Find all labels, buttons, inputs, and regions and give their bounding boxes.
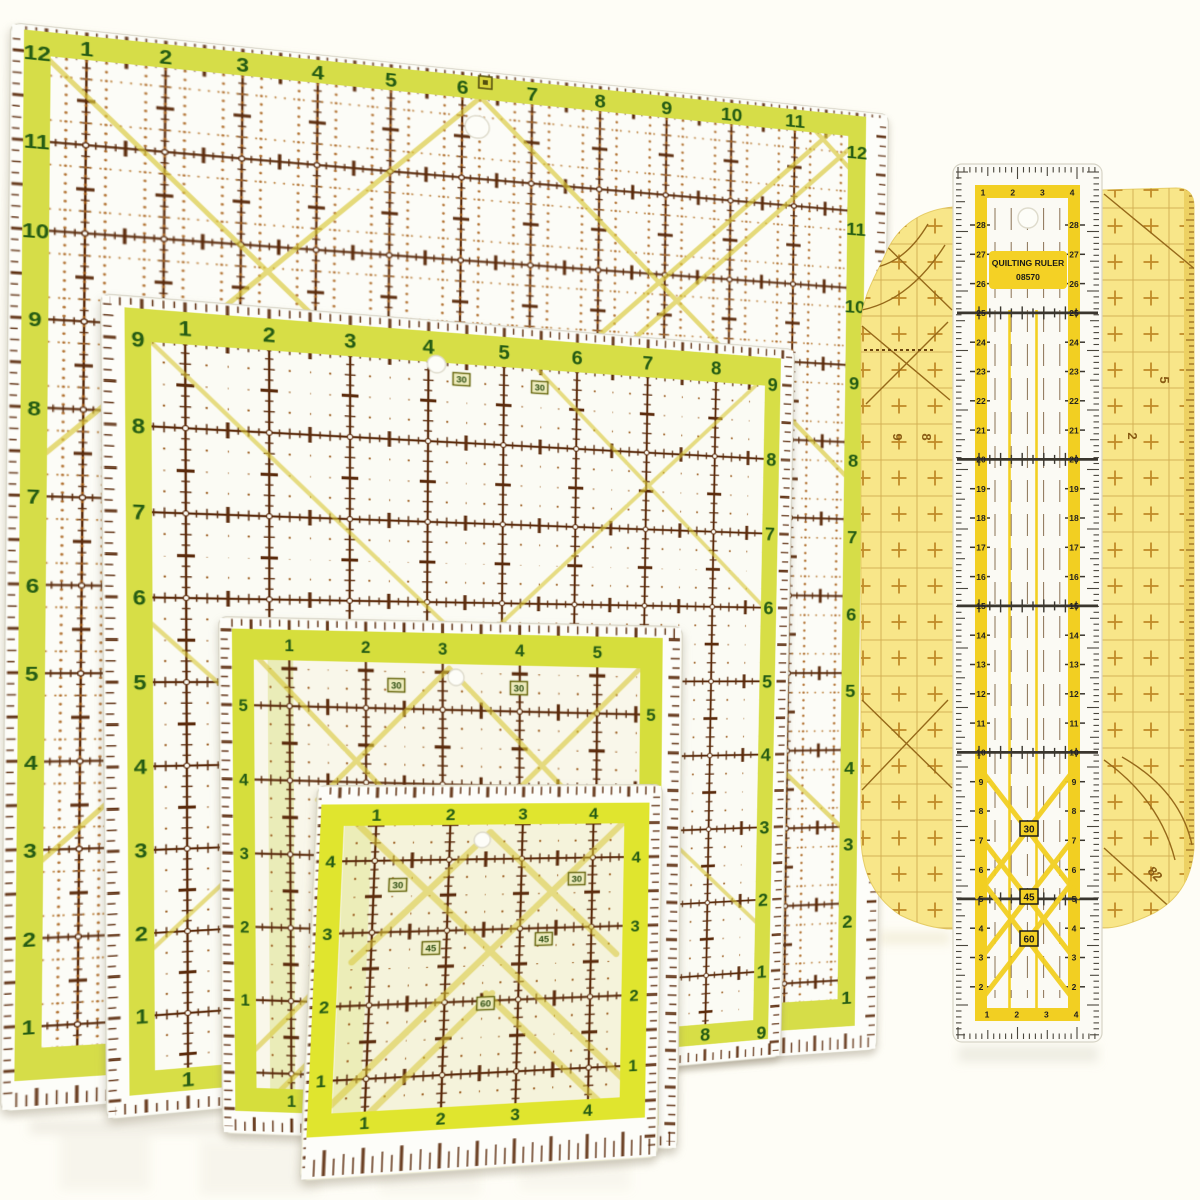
svg-text:5: 5 [1072, 894, 1077, 904]
svg-text:QUILTING RULER: QUILTING RULER [992, 258, 1065, 268]
svg-text:4: 4 [583, 1100, 593, 1120]
svg-text:19: 19 [1069, 484, 1079, 494]
svg-text:30: 30 [391, 680, 402, 691]
svg-text:17: 17 [976, 543, 986, 553]
svg-text:3: 3 [1072, 953, 1077, 963]
svg-text:2: 2 [263, 324, 276, 348]
svg-text:7: 7 [979, 836, 984, 846]
svg-text:1: 1 [359, 1113, 370, 1134]
svg-text:25: 25 [1069, 308, 1079, 318]
svg-text:1: 1 [285, 635, 295, 655]
svg-text:21: 21 [976, 425, 986, 435]
svg-text:28: 28 [1069, 220, 1079, 230]
svg-text:22: 22 [976, 396, 986, 406]
svg-text:16: 16 [1069, 572, 1079, 582]
svg-text:2: 2 [446, 805, 456, 824]
svg-text:1: 1 [315, 1071, 327, 1092]
svg-text:6: 6 [133, 587, 146, 610]
svg-text:4: 4 [589, 804, 599, 822]
svg-text:1: 1 [757, 963, 767, 983]
svg-text:30: 30 [535, 383, 545, 394]
svg-text:30: 30 [514, 683, 525, 694]
svg-text:30: 30 [1023, 825, 1035, 836]
svg-text:9: 9 [979, 777, 984, 787]
svg-text:25: 25 [976, 308, 986, 318]
svg-text:6: 6 [572, 348, 583, 370]
svg-text:23: 23 [1069, 367, 1079, 377]
svg-text:3: 3 [134, 840, 147, 863]
svg-text:30: 30 [456, 374, 467, 385]
svg-text:6: 6 [979, 865, 984, 875]
svg-text:15: 15 [1069, 601, 1079, 611]
svg-text:24: 24 [1069, 337, 1079, 347]
svg-text:3: 3 [344, 330, 356, 353]
svg-text:3: 3 [438, 638, 447, 658]
svg-text:2: 2 [1010, 188, 1015, 198]
svg-text:27: 27 [976, 250, 986, 260]
svg-text:8: 8 [919, 433, 934, 440]
svg-text:14: 14 [1069, 630, 1079, 640]
svg-text:21: 21 [1069, 425, 1079, 435]
svg-text:5: 5 [498, 342, 510, 365]
svg-text:20: 20 [976, 455, 986, 465]
svg-text:7: 7 [132, 501, 145, 525]
svg-text:7: 7 [1072, 836, 1077, 846]
svg-text:9: 9 [890, 433, 905, 440]
svg-text:2: 2 [361, 637, 370, 657]
svg-text:17: 17 [1069, 543, 1079, 553]
svg-text:2: 2 [979, 982, 984, 992]
svg-text:2: 2 [1014, 1010, 1019, 1020]
svg-text:4: 4 [979, 923, 984, 933]
svg-text:4: 4 [515, 640, 525, 660]
svg-text:45: 45 [1023, 893, 1035, 904]
svg-text:2: 2 [240, 917, 249, 937]
svg-text:4: 4 [761, 746, 772, 766]
svg-text:3: 3 [1044, 1010, 1049, 1020]
svg-text:11: 11 [1070, 718, 1079, 728]
svg-text:2: 2 [1125, 432, 1140, 439]
svg-text:1: 1 [287, 1091, 297, 1111]
svg-text:30: 30 [392, 880, 403, 891]
svg-text:1: 1 [371, 806, 382, 825]
svg-text:3: 3 [979, 953, 984, 963]
svg-text:15: 15 [976, 601, 986, 611]
svg-text:4: 4 [1072, 923, 1077, 933]
svg-text:4: 4 [239, 769, 249, 789]
svg-text:1: 1 [178, 317, 191, 341]
svg-text:08570: 08570 [1016, 272, 1040, 282]
svg-text:60: 60 [1023, 935, 1035, 946]
svg-text:4: 4 [1070, 188, 1075, 198]
svg-text:3: 3 [630, 916, 640, 935]
svg-text:18: 18 [1069, 513, 1079, 523]
svg-text:23: 23 [976, 367, 986, 377]
svg-text:2: 2 [1072, 982, 1077, 992]
svg-text:24: 24 [976, 337, 986, 347]
svg-text:8: 8 [711, 358, 722, 379]
svg-text:3: 3 [518, 805, 528, 824]
svg-text:1: 1 [628, 1056, 638, 1076]
svg-text:10: 10 [1069, 748, 1079, 758]
svg-text:28: 28 [976, 220, 986, 230]
svg-text:1: 1 [241, 990, 251, 1010]
svg-text:5: 5 [979, 894, 984, 904]
svg-text:20: 20 [1069, 455, 1079, 465]
svg-text:26: 26 [1069, 279, 1079, 289]
svg-text:2: 2 [629, 986, 638, 1005]
svg-text:30: 30 [571, 874, 582, 884]
svg-text:9: 9 [1072, 777, 1077, 787]
svg-text:3: 3 [510, 1104, 521, 1124]
svg-text:18: 18 [976, 513, 986, 523]
svg-text:5: 5 [593, 642, 603, 663]
svg-text:1: 1 [135, 1006, 148, 1029]
svg-text:4: 4 [1074, 1010, 1079, 1020]
svg-text:4: 4 [632, 848, 642, 867]
svg-text:13: 13 [1069, 660, 1079, 670]
svg-text:19: 19 [976, 484, 986, 494]
svg-text:3: 3 [322, 924, 333, 944]
svg-text:9: 9 [768, 375, 778, 396]
svg-text:5: 5 [646, 705, 656, 725]
svg-text:2: 2 [319, 997, 330, 1017]
svg-text:3: 3 [240, 843, 249, 863]
svg-text:6: 6 [1072, 865, 1077, 875]
svg-text:3: 3 [759, 818, 769, 838]
svg-text:2: 2 [758, 891, 768, 911]
svg-text:26: 26 [976, 279, 986, 289]
svg-text:12: 12 [1069, 689, 1079, 699]
svg-text:14: 14 [976, 630, 986, 640]
svg-text:12: 12 [976, 689, 986, 699]
svg-text:9: 9 [756, 1023, 766, 1043]
svg-text:3: 3 [1040, 188, 1045, 198]
svg-text:6: 6 [763, 599, 773, 619]
svg-text:11: 11 [977, 718, 986, 728]
svg-text:7: 7 [642, 353, 653, 375]
svg-text:9: 9 [131, 328, 145, 353]
svg-text:22: 22 [1069, 396, 1079, 406]
svg-text:8: 8 [979, 806, 984, 816]
svg-text:16: 16 [976, 572, 986, 582]
svg-text:1: 1 [182, 1069, 195, 1092]
svg-text:4: 4 [134, 756, 148, 779]
svg-text:60: 60 [480, 999, 491, 1010]
svg-text:1: 1 [981, 188, 986, 198]
svg-text:8: 8 [700, 1025, 710, 1045]
svg-text:5: 5 [1157, 376, 1172, 383]
svg-text:13: 13 [976, 660, 986, 670]
svg-text:8: 8 [132, 415, 146, 439]
svg-text:1: 1 [985, 1010, 990, 1020]
svg-text:7: 7 [765, 525, 775, 545]
svg-text:5: 5 [133, 672, 146, 695]
svg-text:2: 2 [435, 1108, 446, 1128]
svg-text:45: 45 [425, 943, 437, 954]
svg-text:27: 27 [1069, 250, 1079, 260]
svg-text:45: 45 [538, 934, 549, 945]
svg-text:8: 8 [766, 450, 776, 471]
svg-text:8: 8 [1072, 806, 1077, 816]
svg-text:5: 5 [239, 695, 249, 715]
svg-text:2: 2 [135, 923, 148, 946]
svg-text:4: 4 [325, 852, 336, 872]
svg-text:10: 10 [976, 748, 986, 758]
svg-text:5: 5 [762, 673, 772, 693]
